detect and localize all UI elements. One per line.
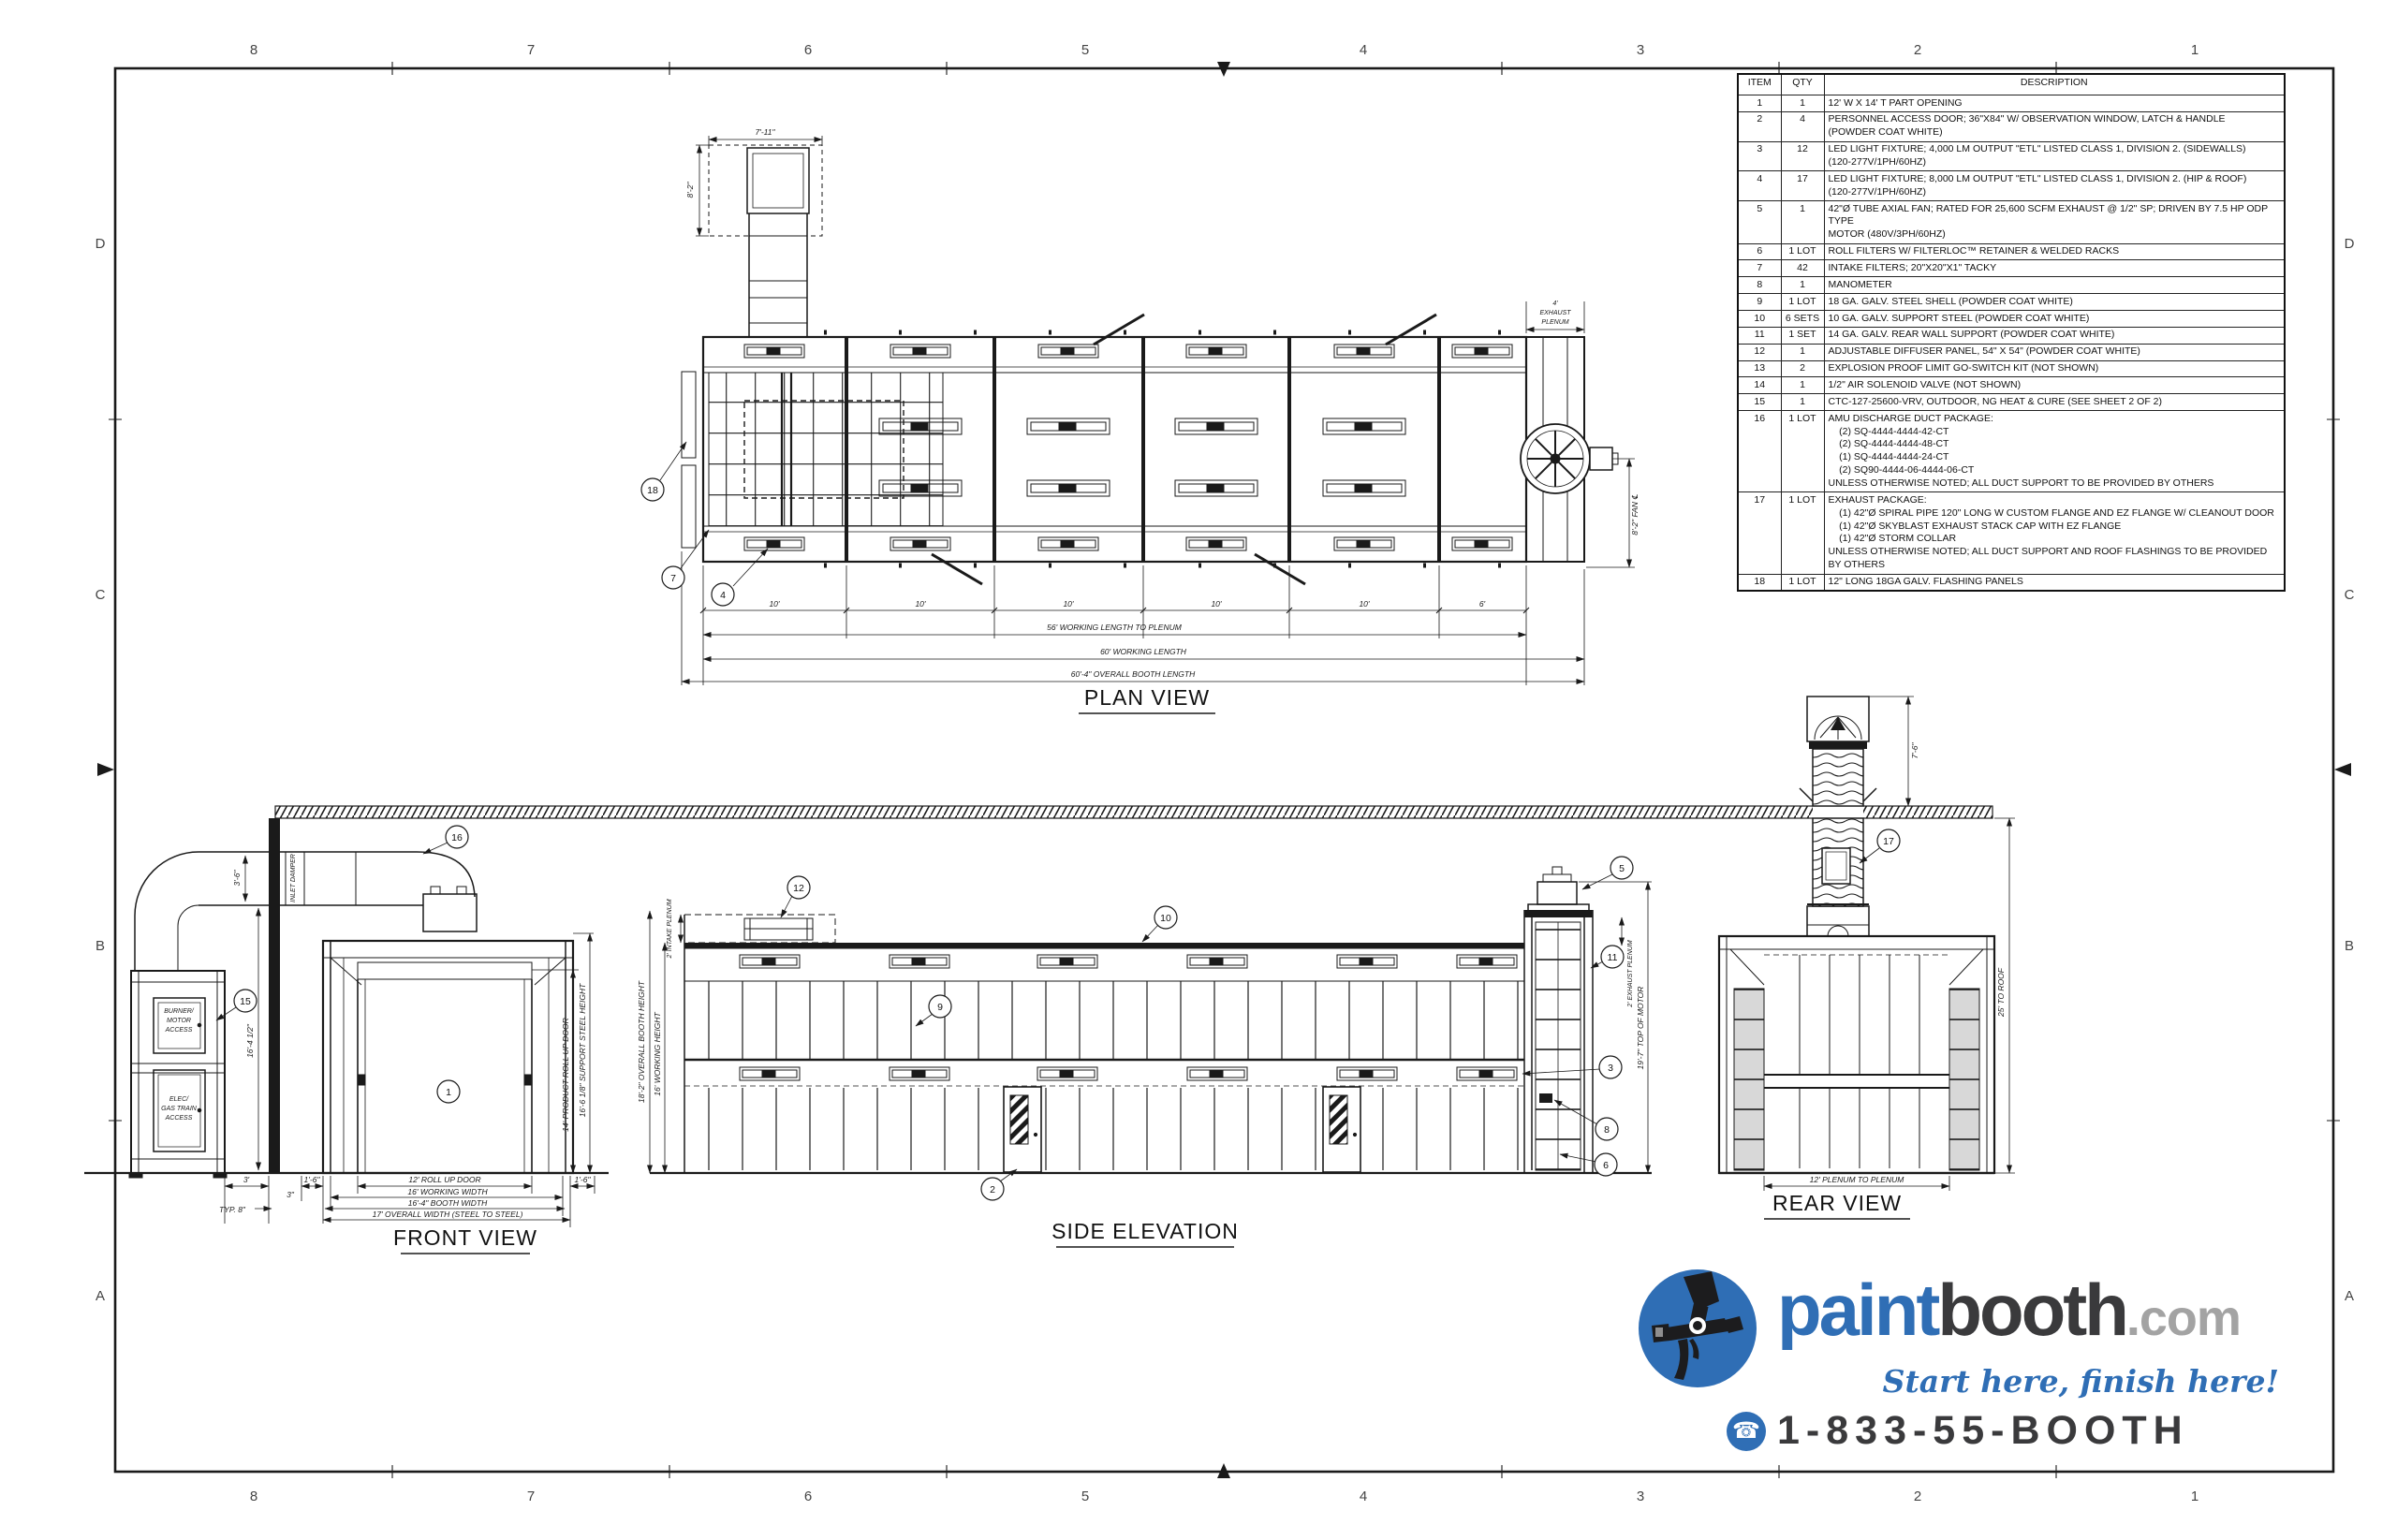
svg-text:6: 6 [804,42,812,58]
parts-list-table: ITEM QTY DESCRIPTION 1112' W X 14' T PAR… [1737,73,2286,592]
rear-view-title: REAR VIEW [1772,1191,1902,1215]
dim-door-height: 14' PRODUCT ROLL UP DOOR [561,1018,570,1132]
front-view-title: FRONT VIEW [393,1225,537,1250]
amu-door2-label: ELEC/ [169,1096,189,1103]
front-view-drawing: 16 15 1 BURNER/ MOTOR ACCESS ELEC/ GAS T… [84,818,609,1254]
svg-text:3'-6": 3'-6" [232,870,242,887]
table-row: 1112' W X 14' T PART OPENING [1738,95,2285,112]
svg-text:4: 4 [1360,42,1367,58]
svg-text:6: 6 [1603,1160,1609,1171]
table-row: 111 SET14 GA. GALV. REAR WALL SUPPORT (P… [1738,327,2285,344]
svg-text:7: 7 [670,573,676,584]
table-row: 5142"Ø TUBE AXIAL FAN; RATED FOR 25,600 … [1738,201,2285,244]
phone-icon: ☎ [1727,1412,1766,1451]
exhaust-stack [1800,697,1876,906]
amu-burner-door [154,998,205,1053]
svg-text:GAS TRAIN: GAS TRAIN [161,1106,198,1112]
svg-text:2: 2 [1914,1489,1921,1504]
paintbooth-logo-block: paintbooth.com Start here, finish here! … [1629,1266,2290,1464]
dim-working-length-to-plenum: 56' WORKING LENGTH TO PLENUM [1047,623,1183,632]
table-row: 1411/2" AIR SOLENOID VALVE (NOT SHOWN) [1738,377,2285,394]
table-row: 181 LOT12" LONG 18GA GALV. FLASHING PANE… [1738,574,2285,591]
intake-plenum [684,915,835,943]
wordmark: paintbooth.com [1777,1268,2241,1353]
duct-fan-box [747,148,809,213]
qty-header: QTY [1781,74,1824,95]
svg-text:B: B [96,938,105,954]
svg-text:C: C [2345,587,2355,603]
light-fixture [744,345,804,358]
side-elevation-drawing: 12 10 9 2 5 11 3 8 6 2' INTAKE PLENUM 18… [637,857,1652,1247]
building-wall [269,818,280,1173]
dim-intake-plenum: 2' INTAKE PLENUM [667,899,673,959]
flashing-panel [682,465,696,548]
svg-text:MOTOR: MOTOR [167,1018,191,1024]
table-row: 742INTAKE FILTERS; 20"X20"X1" TACKY [1738,260,2285,277]
item-header: ITEM [1738,74,1781,95]
description-header: DESCRIPTION [1824,74,2285,95]
svg-text:7: 7 [527,42,535,58]
dim-stack-height: 7'-6" [1910,742,1919,759]
svg-text:8: 8 [1604,1124,1610,1136]
svg-text:1: 1 [2191,1489,2198,1504]
svg-text:4: 4 [1360,1489,1367,1504]
svg-text:3: 3 [1637,42,1644,58]
svg-text:10': 10' [1063,599,1073,609]
svg-text:C: C [96,587,106,603]
svg-text:3": 3" [287,1190,295,1199]
side-elevation-title: SIDE ELEVATION [1051,1219,1239,1243]
svg-text:1: 1 [446,1087,451,1098]
light-fixture [740,955,800,968]
svg-text:1: 1 [2191,42,2198,58]
table-row: 61 LOTROLL FILTERS W/ FILTERLOC™ RETAINE… [1738,243,2285,260]
dim-bay: 10' [769,599,779,609]
dim-steel-height: 16'-6 1/8" SUPPORT STEEL HEIGHT [578,983,587,1118]
spray-gun-icon [1639,1269,1757,1387]
svg-text:16: 16 [451,832,463,843]
svg-text:PLENUM: PLENUM [1541,319,1568,326]
tagline: Start here, finish here! [1883,1363,2279,1400]
svg-text:EXHAUST: EXHAUST [1539,310,1571,316]
svg-text:5: 5 [1081,42,1089,58]
table-row: 171 LOTEXHAUST PACKAGE: (1) 42"Ø SPIRAL … [1738,492,2285,574]
table-row: 417LED LIGHT FIXTURE; 8,000 LM OUTPUT "E… [1738,171,2285,201]
wordmark-com: .com [2126,1290,2241,1346]
dim-plenum-to-plenum: 12' PLENUM TO PLENUM [1810,1175,1905,1184]
svg-text:D: D [96,236,106,252]
dim-top-of-motor: 19'-7" TOP OF MOTOR [1636,987,1645,1070]
desc-cell: 12' W X 14' T PART OPENING [1824,95,2285,112]
svg-text:1'-6": 1'-6" [575,1175,592,1184]
amu-footprint [709,145,822,236]
svg-text:4': 4' [1552,301,1558,307]
callout-number: 18 [647,485,658,496]
manometer [1539,1093,1552,1103]
wordmark-paint: paint [1777,1269,1937,1351]
svg-text:ACCESS: ACCESS [165,1115,193,1122]
svg-text:16'-4 1/2": 16'-4 1/2" [245,1023,255,1058]
svg-text:TYP. 8": TYP. 8" [219,1205,246,1214]
dim-booth-width: 16'-4" BOOTH WIDTH [408,1198,488,1208]
booth-front [323,941,573,1173]
svg-text:3: 3 [1608,1063,1613,1074]
svg-text:7: 7 [527,1489,535,1504]
dim-fan-centerline: 8'-2" FAN ℄ [1630,494,1640,535]
drawing-sheet: 8 7 6 5 4 3 2 1 8 7 6 5 4 3 2 1 D C B A … [0,0,2397,1540]
svg-text:A: A [2345,1288,2354,1304]
center-mark-left [97,763,114,776]
zone-col: 8 [250,42,257,58]
amu-supply-duct [135,852,477,971]
svg-text:2: 2 [990,1184,995,1195]
qty-cell: 1 [1781,95,1824,112]
center-mark-right [2334,763,2351,776]
rear-view-drawing: 17 7'-6" 25' TO ROOF 12' PLENUM TO PLENU… [1719,697,2015,1219]
svg-text:17: 17 [1883,836,1894,847]
svg-text:ACCESS: ACCESS [165,1027,193,1034]
dim-to-roof: 25' TO ROOF [1996,967,2006,1018]
table-row: 151CTC-127-25600-VRV, OUTDOOR, NG HEAT &… [1738,394,2285,411]
svg-text:B: B [2345,938,2354,954]
dim-working-length: 60' WORKING LENGTH [1100,647,1187,656]
item-cell: 1 [1738,95,1781,112]
svg-text:8: 8 [250,1489,257,1504]
exhaust-fan-motor [1537,882,1577,904]
fan-motor [1590,447,1612,470]
svg-text:10': 10' [915,599,925,609]
table-row: 106 SETS10 GA. GALV. SUPPORT STEEL (POWD… [1738,311,2285,328]
svg-text:9: 9 [937,1002,943,1013]
svg-text:10: 10 [1160,913,1171,924]
svg-text:2: 2 [1914,42,1921,58]
svg-text:3': 3' [243,1175,250,1184]
table-row: 24PERSONNEL ACCESS DOOR; 36"X84" W/ OBSE… [1738,111,2285,141]
building-roof-line [275,806,1993,818]
svg-text:5: 5 [1619,863,1625,874]
svg-text:D: D [2345,236,2355,252]
svg-text:1'-6": 1'-6" [304,1175,321,1184]
table-row: 132EXPLOSION PROOF LIMIT GO-SWITCH KIT (… [1738,360,2285,377]
plan-view-title: PLAN VIEW [1084,685,1210,710]
phone-row: ☎ 1-833-55-BOOTH [1727,1408,2189,1454]
table-row: 81MANOMETER [1738,277,2285,294]
svg-text:12: 12 [793,883,804,894]
rear-wall-support [1734,989,1979,1170]
flashing-panel [682,372,696,458]
svg-text:5: 5 [1081,1489,1089,1504]
svg-text:6': 6' [1479,599,1486,609]
dim-overall-height: 18'-2" OVERALL BOOTH HEIGHT [637,980,646,1103]
door-header [358,962,532,979]
svg-text:15: 15 [240,996,251,1007]
svg-text:11: 11 [1608,952,1618,963]
personnel-door [1323,1087,1360,1172]
personnel-door [1004,1087,1041,1172]
table-row: 161 LOTAMU DISCHARGE DUCT PACKAGE: (2) S… [1738,411,2285,492]
dim-overall-width: 17' OVERALL WIDTH (STEEL TO STEEL) [373,1210,523,1219]
dim-duct-width: 7'-11" [755,127,775,137]
svg-text:3: 3 [1637,1489,1644,1504]
table-header-row: ITEM QTY DESCRIPTION [1738,74,2285,95]
svg-text:10': 10' [1359,599,1369,609]
dim-working-width: 16' WORKING WIDTH [407,1187,488,1196]
cleanout-door [1822,848,1850,884]
phone-number: 1-833-55-BOOTH [1777,1408,2189,1454]
amu-door1-label: BURNER/ [164,1008,195,1015]
plan-view-drawing: 18 7 4 7'-11" 8'-2" 4' EXHAUST PLENUM 10… [641,127,1640,713]
dim-exhaust-plenum: 2' EXHAUST PLENUM [1627,940,1634,1008]
dim-working-height: 16' WORKING HEIGHT [653,1011,662,1095]
svg-text:10': 10' [1211,599,1221,609]
table-row: 121ADJUSTABLE DIFFUSER PANEL, 54" X 54" … [1738,344,2285,360]
dim-duct-height: 8'-2" [685,182,695,198]
inlet-damper-label: INLET DAMPER [290,854,297,902]
front-callouts [216,826,468,1103]
svg-text:4: 4 [720,590,726,601]
plan-duct [749,213,807,337]
svg-text:6: 6 [804,1489,812,1504]
svg-text:A: A [96,1288,105,1304]
table-row: 312LED LIGHT FIXTURE; 4,000 LM OUTPUT "E… [1738,141,2285,171]
dim-overall-length: 60'-4" OVERALL BOOTH LENGTH [1071,669,1196,679]
dim-rollup-door: 12' ROLL UP DOOR [408,1175,480,1184]
air-makeup-unit [129,971,227,1178]
wordmark-booth: booth [1937,1269,2126,1351]
exhaust-plenum-tower [1524,867,1593,1173]
table-row: 91 LOT18 GA. GALV. STEEL SHELL (POWDER C… [1738,294,2285,311]
